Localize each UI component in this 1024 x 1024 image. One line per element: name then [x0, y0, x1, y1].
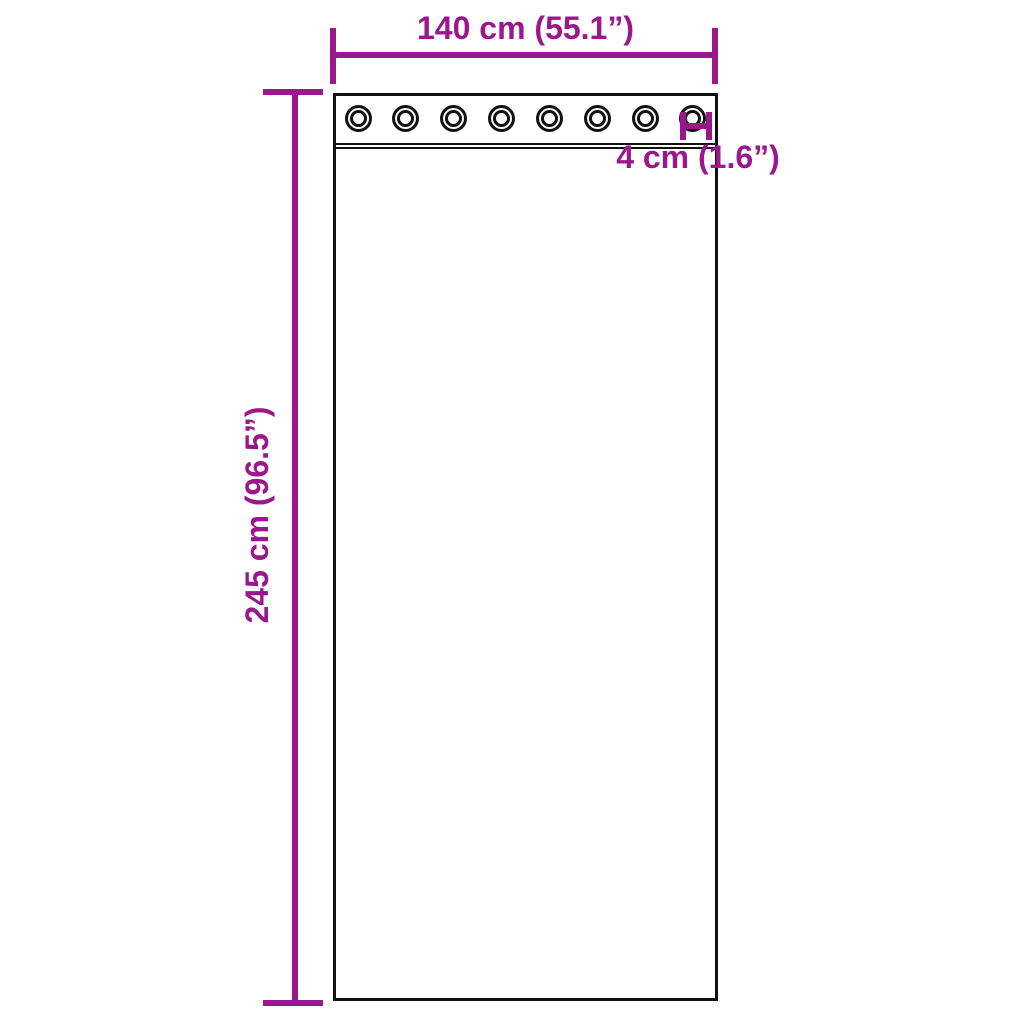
grommet-icon: [345, 105, 372, 132]
grommet-icon: [392, 105, 419, 132]
grommet-icon: [584, 105, 611, 132]
curtain-panel-outline: [333, 93, 718, 1001]
height-dimension-line: [292, 92, 298, 1003]
grommet-dimension-label: 4 cm (1.6”): [558, 140, 838, 174]
grommet-dimension-right-cap: [706, 112, 712, 140]
height-dimension-bottom-cap: [263, 1000, 323, 1006]
grommet-inner-ring: [637, 110, 654, 127]
grommet-inner-ring: [493, 110, 510, 127]
grommet-inner-ring: [397, 110, 414, 127]
grommet-icon: [440, 105, 467, 132]
grommet-inner-ring: [589, 110, 606, 127]
height-dimension-label: 245 cm (96.5”): [239, 315, 275, 715]
grommet-icon: [536, 105, 563, 132]
grommet-inner-ring: [541, 110, 558, 127]
grommet-icon: [488, 105, 515, 132]
width-dimension-label: 140 cm (55.1”): [333, 10, 718, 46]
grommet-inner-ring: [350, 110, 367, 127]
width-dimension-line: [333, 52, 718, 58]
grommet-row: [345, 105, 707, 132]
grommet-dimension-left-cap: [680, 112, 686, 140]
grommet-icon: [632, 105, 659, 132]
dimension-diagram: 140 cm (55.1”) 245 cm (96.5”) 4 cm (1.6”…: [0, 0, 1024, 1024]
height-dimension-top-cap: [263, 89, 323, 95]
grommet-inner-ring: [445, 110, 462, 127]
